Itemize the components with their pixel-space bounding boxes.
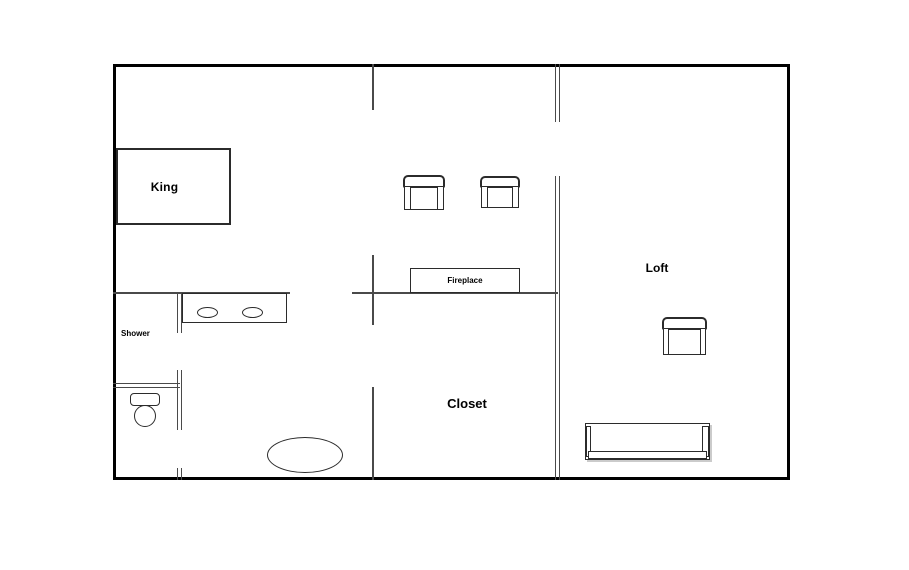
loft-sofa — [585, 423, 710, 460]
loft-armchair-front-edge — [664, 354, 705, 355]
wall-closet-left — [372, 387, 374, 480]
armchair-right-arm — [481, 186, 488, 208]
shower-label: Shower — [121, 329, 150, 338]
loft-label: Loft — [640, 261, 674, 275]
loft-armchair-arm-left — [663, 328, 669, 355]
loft-armchair-arm-right — [700, 328, 706, 355]
armchair-right-arm-right — [512, 186, 519, 208]
wall-toilet-right-upper — [177, 370, 182, 430]
wall-bedroom-right-lower — [372, 255, 374, 325]
closet-label: Closet — [430, 396, 504, 411]
armchair-left — [403, 175, 445, 210]
wall-shower-bottom — [113, 383, 180, 388]
king-bed-label: King — [151, 180, 178, 194]
floor-plan-canvas: King Fireplace Shower Close — [0, 0, 909, 570]
armchair-right-front-edge — [482, 207, 518, 208]
wall-loft-left-lower — [555, 176, 560, 480]
king-bed: King — [116, 148, 231, 225]
fireplace-label: Fireplace — [447, 276, 482, 285]
armchair-left-front-edge — [405, 209, 443, 210]
sink-right — [242, 307, 263, 318]
fireplace: Fireplace — [410, 268, 520, 293]
loft-sofa-back — [588, 451, 707, 459]
wall-bedroom-right-upper — [372, 64, 374, 110]
armchair-left-arm — [404, 186, 411, 210]
armchair-left-arm-right — [437, 186, 444, 210]
armchair-right — [480, 176, 520, 208]
wall-loft-left-upper — [555, 64, 560, 122]
wall-toilet-right-lower — [177, 468, 182, 480]
toilet-bowl — [134, 405, 156, 427]
loft-armchair — [662, 317, 707, 355]
sink-counter — [182, 293, 287, 323]
oval-rug — [267, 437, 343, 473]
sink-left — [197, 307, 218, 318]
